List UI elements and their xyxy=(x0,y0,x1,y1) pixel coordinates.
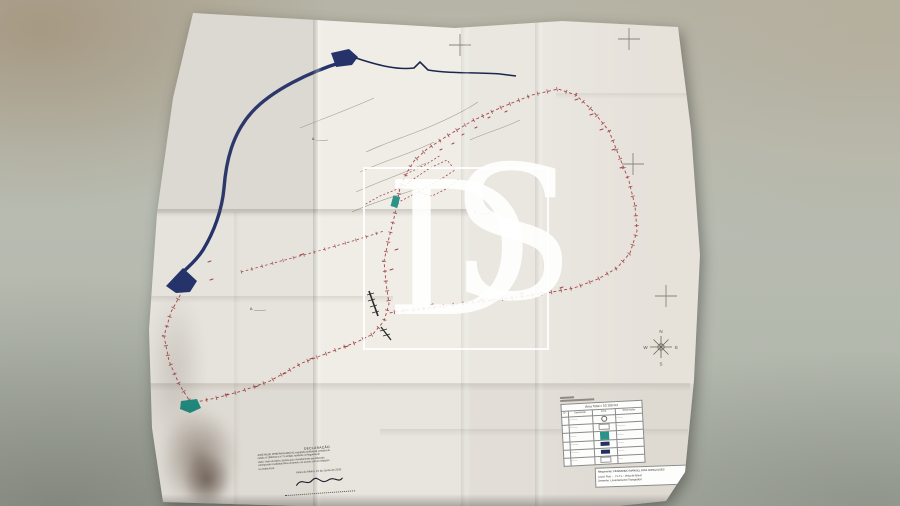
legend-symbol-navy xyxy=(601,449,610,453)
legend-symbol-navy xyxy=(601,441,610,445)
ink-hatch-marks xyxy=(367,291,391,340)
compass-east-label: E xyxy=(675,345,678,350)
paper-shadow-wrap: N E S W A. ______ A. ______ A. ______ xyxy=(0,0,900,506)
map-drawing: N E S W A. ______ A. ______ A. ______ xyxy=(0,0,900,506)
place-label: A. ______ xyxy=(312,136,328,141)
legend-symbol-swatch xyxy=(599,423,610,430)
place-label: A. ______ xyxy=(250,306,266,311)
river-main-path xyxy=(183,62,342,272)
compass-north-label: N xyxy=(659,329,662,334)
handwritten-note-mark xyxy=(560,398,594,402)
place-labels: A. ______ A. ______ A. ______ xyxy=(250,136,490,311)
legend-symbol-teal xyxy=(600,431,609,439)
river-reservoir xyxy=(166,268,197,293)
declaration-block: DECLARAÇÃO JOSÉ MILDE PEREIRA RAMALHO, t… xyxy=(257,442,380,498)
boundary-inner-web xyxy=(364,155,460,205)
teal-parcel-blob xyxy=(180,399,201,413)
compass-west-label: W xyxy=(643,345,648,350)
stream-line-top xyxy=(356,58,516,76)
map-paper-sheet: N E S W A. ______ A. ______ A. ______ xyxy=(0,0,900,506)
legend-symbol-swatch xyxy=(601,456,612,463)
place-label: A. ______ xyxy=(474,209,490,214)
river xyxy=(166,49,516,293)
pencil-contour-lines xyxy=(300,98,520,212)
legend-table: Área Total = 53 150 m2 Nº Designação Sím… xyxy=(560,400,645,467)
legend-block: Área Total = 53 150 m2 Nº Designação Sím… xyxy=(560,391,654,466)
red-survey-dots xyxy=(205,99,623,395)
compass-south-label: S xyxy=(659,362,662,367)
photo-of-folded-map: N E S W A. ______ A. ______ A. ______ xyxy=(0,0,900,506)
compass-rose: N E S W xyxy=(643,329,678,367)
title-block: Requerente: FERNANDO MANUEL DIAS GONÇALV… xyxy=(595,464,697,487)
legend-symbol-circle xyxy=(601,416,607,422)
signature-scribble xyxy=(294,472,345,489)
registration-cross-marks xyxy=(449,28,677,307)
boundary-diagonal-ticks xyxy=(241,231,384,272)
